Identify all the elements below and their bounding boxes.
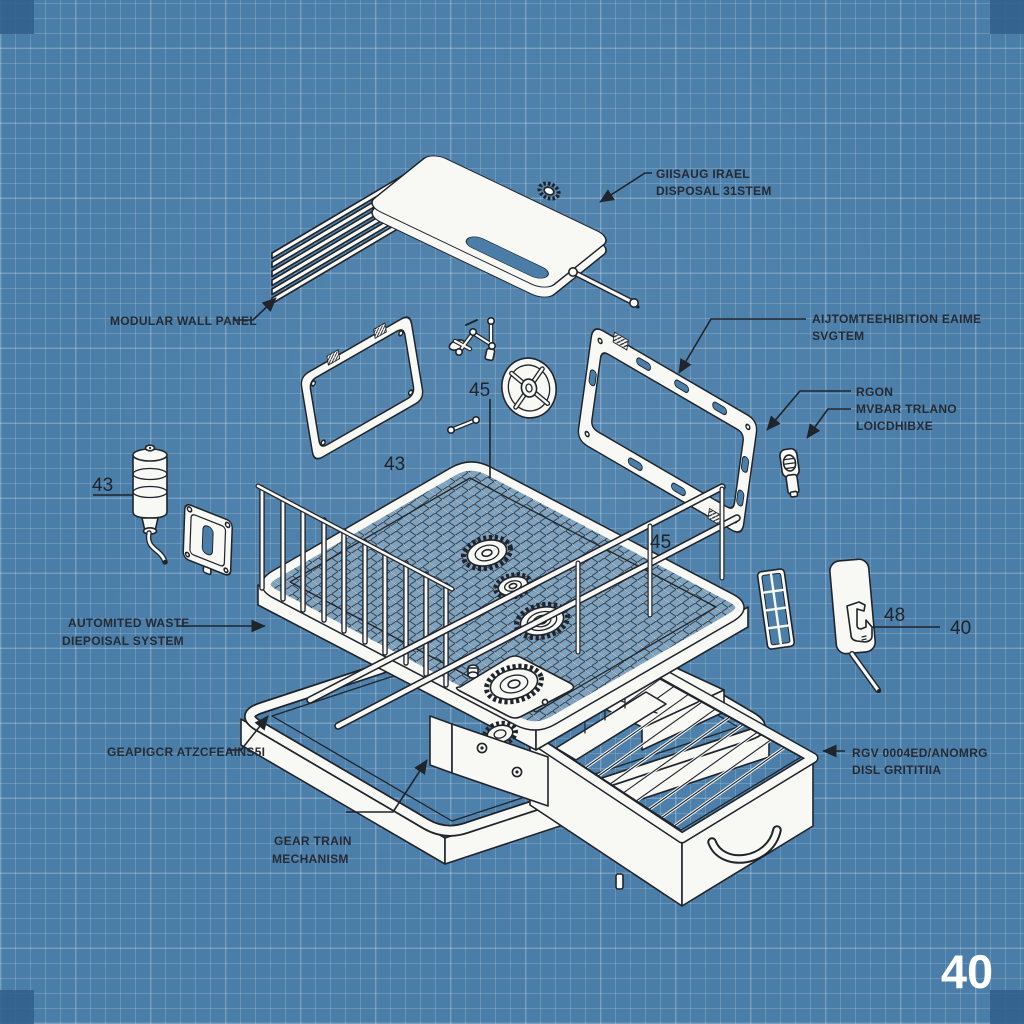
leader-hinge-a	[767, 391, 851, 430]
exploded-diagram: GIISAUG IRAEL DISPOSAL 31STEM MODULAR WA…	[0, 0, 1024, 1024]
part-number-hook-panel: 48	[884, 605, 905, 626]
label-gear-garbled: GEAPIGCR ATZCFEAINS5I	[107, 745, 265, 759]
part-number-frame: 43	[384, 454, 405, 475]
leader-frame-system	[679, 319, 806, 373]
hand-wheel	[496, 353, 561, 423]
sheet-number: 40	[941, 945, 993, 998]
label-lid-system-line1: GIISAUG IRAEL	[656, 167, 750, 181]
blueprint-sheet: GIISAUG IRAEL DISPOSAL 31STEM MODULAR WA…	[0, 0, 1024, 1024]
label-hinge-line3: LOICDHIBXE	[856, 419, 933, 433]
label-frame-system-line2: SVGTEM	[812, 329, 864, 343]
filter-grid-panel	[757, 569, 795, 650]
leader-lid-system	[600, 173, 652, 202]
label-hinge-line1: RGON	[856, 385, 893, 399]
drawer-latch-tab	[616, 874, 623, 889]
label-gear-train-line1: GEAR TRAIN	[274, 834, 352, 848]
top-lid-panel	[366, 152, 612, 301]
frame-43	[299, 309, 424, 462]
valve-linkage-assembly	[448, 318, 495, 361]
label-gear-train-line2: MECHANISM	[272, 852, 349, 866]
label-lid-system-line2: DISPOSAL 31STEM	[656, 184, 772, 198]
connector-rod	[569, 268, 640, 309]
label-wall-panel: MODULAR WALL PANEL	[110, 314, 257, 328]
label-waste-line2: DIEPOISAL SYSTEM	[62, 634, 184, 648]
latch-part	[779, 448, 803, 498]
part-number-top: 45	[469, 380, 490, 401]
hook-panel	[829, 558, 881, 693]
part-number-cage: 45	[650, 532, 671, 553]
pin-rod	[448, 417, 479, 433]
hook-rod	[852, 654, 881, 693]
label-waste-line1: AUTOMITED WASTE	[68, 616, 190, 630]
label-hinge-line2: MVBAR TRLANO	[856, 402, 957, 416]
water-bottle	[133, 445, 167, 564]
label-drawer-line2: DISL GRITITIIA	[852, 763, 941, 777]
feeder-door-panel	[183, 503, 233, 583]
lid-knob-gear-icon	[537, 181, 561, 202]
leader-hinge-b	[807, 409, 851, 438]
label-frame-system-line1: AIJTOMTEEHIBITION EAIME	[812, 312, 981, 326]
part-number-hook-leader: 40	[950, 618, 971, 639]
label-drawer-line1: RGV 0004ED/ANOMRG	[852, 746, 988, 760]
frame-right-slotted	[577, 320, 759, 538]
part-number-bottle: 43	[92, 475, 113, 496]
